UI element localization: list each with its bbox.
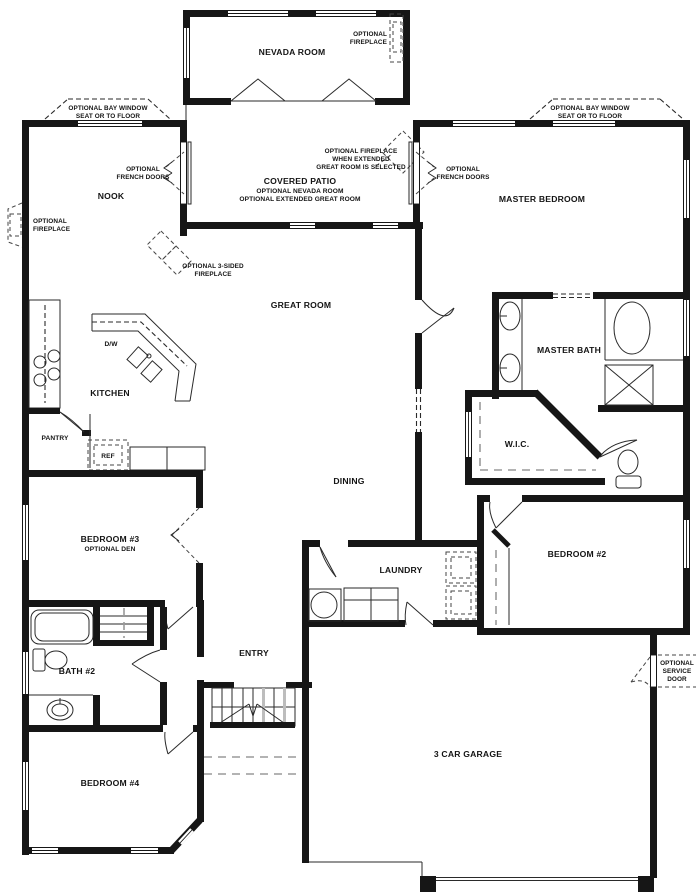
porch-steps <box>210 688 295 728</box>
bedroom4-walls <box>22 682 204 854</box>
nook-fireplace-ann-1: OPTIONAL <box>33 218 67 225</box>
master-bedroom-label: MASTER BEDROOM <box>499 194 585 204</box>
french-left-ann-1: OPTIONAL <box>126 166 160 173</box>
kitchen-sink-fixture <box>127 347 162 382</box>
nook-fireplace-ann-2: FIREPLACE <box>33 226 71 233</box>
laundry-label: LAUNDRY <box>379 565 422 575</box>
bay-left-ann-1: OPTIONAL BAY WINDOW <box>68 105 148 112</box>
walkway-dashes <box>204 757 303 774</box>
nevada-optional-fireplace <box>390 14 403 62</box>
french-right-ann-2: FRENCH DOORS <box>436 174 490 181</box>
bay-right-ann-1: OPTIONAL BAY WINDOW <box>550 105 630 112</box>
bay-right-ann-2: SEAT OR TO FLOOR <box>558 113 622 120</box>
great-room-top-wall <box>183 222 423 229</box>
three-sided-fireplace-ann-1: OPTIONAL 3-SIDED <box>182 263 244 270</box>
kitchen-label: KITCHEN <box>90 388 130 398</box>
bedroom3-sub-label: OPTIONAL DEN <box>85 546 136 553</box>
bath2-walls <box>22 600 204 725</box>
washer-dryer-fixture <box>446 552 476 619</box>
entry-front-wall <box>204 682 312 688</box>
bedroom3-label: BEDROOM #3 <box>81 534 140 544</box>
wic-walls <box>465 390 637 485</box>
patio-fireplace-ann-3: GREAT ROOM IS SELECTED <box>316 164 406 171</box>
covered-patio-label: COVERED PATIO <box>264 176 337 186</box>
master-bath-label: MASTER BATH <box>537 345 601 355</box>
garage-walls <box>309 635 657 892</box>
bedroom2-walls <box>477 495 690 635</box>
room-labels: NEVADA ROOM COVERED PATIO OPTIONAL NEVAD… <box>42 47 607 788</box>
dw-label: D/W <box>104 341 118 348</box>
entry-label: ENTRY <box>239 648 269 658</box>
great-room-label: GREAT ROOM <box>271 300 332 310</box>
garage-label: 3 CAR GARAGE <box>434 749 502 759</box>
dining-hall-wall <box>415 229 454 540</box>
laundry-sink-fixture <box>309 589 341 621</box>
floor-plan-drawing: NEVADA ROOM COVERED PATIO OPTIONAL NEVAD… <box>0 0 700 894</box>
annotation-labels: OPTIONAL FIREPLACE OPTIONAL BAY WINDOW S… <box>33 31 694 683</box>
bath2-sink-fixture <box>29 695 100 725</box>
covered-patio-sub1: OPTIONAL NEVADA ROOM <box>256 188 344 195</box>
bedroom2-label: BEDROOM #2 <box>548 549 607 559</box>
bath2-tub-fixture <box>31 610 93 644</box>
nevada-room-walls <box>183 10 410 105</box>
patio-fireplace-ann-2: WHEN EXTENDED <box>332 156 390 163</box>
service-door-ann-2: SERVICE <box>663 668 692 675</box>
master-toilet-fixture <box>616 450 641 488</box>
nevada-room-label: NEVADA ROOM <box>259 47 326 57</box>
cooktop-fixture <box>34 350 60 386</box>
master-tub-fixture <box>605 299 683 360</box>
nevada-fireplace-ann-1: OPTIONAL <box>353 31 387 38</box>
french-left-ann-2: FRENCH DOORS <box>116 174 170 181</box>
ref-label: REF <box>101 453 115 460</box>
shower-fixture <box>605 365 653 405</box>
bath2-label: BATH #2 <box>59 666 96 676</box>
service-door-ann-1: OPTIONAL <box>660 660 694 667</box>
nook-optional-fireplace <box>8 203 22 247</box>
pantry-label: PANTRY <box>42 435 69 442</box>
wic-label: W.I.C. <box>505 439 530 449</box>
covered-patio-sub2: OPTIONAL EXTENDED GREAT ROOM <box>239 196 361 203</box>
service-door-ann-3: DOOR <box>667 676 687 683</box>
nook-label: NOOK <box>98 191 125 201</box>
patio-fireplace-ann-1: OPTIONAL FIREPLACE <box>325 148 398 155</box>
kitchen-rear-counter <box>130 447 205 470</box>
bay-left-ann-2: SEAT OR TO FLOOR <box>76 113 140 120</box>
dining-label: DINING <box>333 476 364 486</box>
floor-plan-canvas: NEVADA ROOM COVERED PATIO OPTIONAL NEVAD… <box>0 0 700 894</box>
kitchen-counter <box>29 300 60 408</box>
nevada-fireplace-ann-2: FIREPLACE <box>350 39 388 46</box>
laundry-counter <box>344 588 398 621</box>
french-right-ann-1: OPTIONAL <box>446 166 480 173</box>
master-bath-sinks <box>500 299 522 397</box>
three-sided-fireplace-ann-2: FIREPLACE <box>194 271 232 278</box>
bedroom4-label: BEDROOM #4 <box>81 778 140 788</box>
